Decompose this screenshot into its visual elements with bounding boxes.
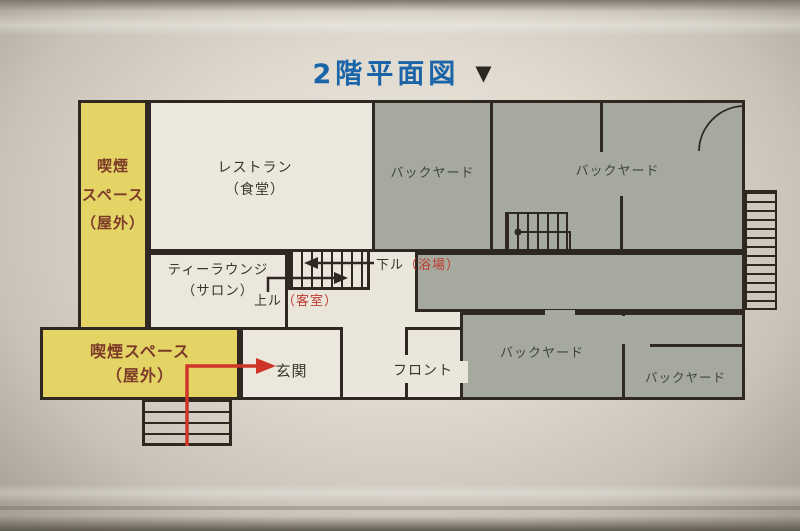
partition-wall-top: [600, 100, 603, 152]
floor-plan: 喫煙 スペース （屋外） レストラン （食堂） バックヤード バックヤード ティ…: [0, 0, 800, 531]
front-desk-wall-top: [405, 327, 463, 330]
backyard-top-right-label: バックヤード: [505, 162, 730, 182]
partition-wall-bottom-right: [650, 344, 745, 347]
backyard-bottom-left-label: バックヤード: [462, 344, 622, 364]
backyard-stairs: [505, 212, 568, 252]
exterior-stairs-right: [745, 190, 777, 310]
front-desk-wall-upper: [405, 327, 408, 355]
exterior-stairs-bottom: [142, 400, 232, 446]
backyard-bottom-right-label: バックヤード: [628, 368, 743, 387]
floor-plan-photo: 2階平面図 ▼ 喫煙: [0, 0, 800, 531]
door-opening-1: [545, 310, 575, 316]
front-desk-label: フロント: [378, 361, 468, 383]
door-opening-2: [621, 316, 627, 344]
partition-wall-mid: [620, 196, 623, 252]
entrance-label: 玄関: [240, 360, 343, 383]
central-stairs: [288, 249, 370, 290]
stairs-up-label: 上ル（客室）: [254, 292, 349, 312]
restaurant-label: レストラン （食堂）: [180, 158, 330, 201]
stairs-down-label: 下ル（浴場）: [376, 256, 471, 276]
smoking-left-label: 喫煙 スペース （屋外）: [76, 152, 150, 238]
backyard-top-left-label: バックヤード: [372, 164, 493, 184]
smoking-bottom-label: 喫煙スペース （屋外）: [45, 340, 235, 388]
